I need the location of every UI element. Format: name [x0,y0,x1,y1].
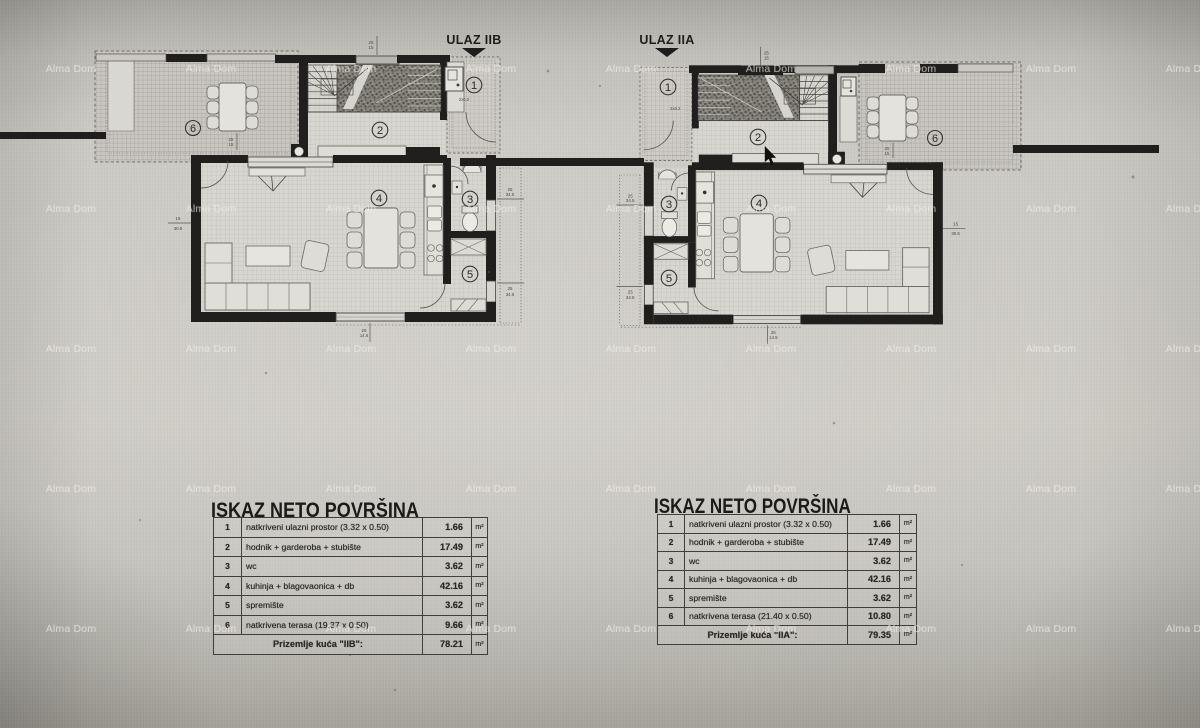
svg-text:15: 15 [176,216,181,221]
svg-text:3: 3 [666,199,672,211]
svg-text:2x0.2: 2x0.2 [459,97,470,102]
svg-text:6: 6 [932,133,938,145]
svg-text:2x0.2: 2x0.2 [670,106,681,111]
svg-text:5: 5 [666,273,672,285]
svg-text:3: 3 [467,194,473,206]
svg-text:30.5: 30.5 [174,226,183,231]
svg-text:15: 15 [764,56,769,61]
svg-text:ULAZ IIA: ULAZ IIA [639,33,694,47]
svg-text:34.5: 34.5 [506,292,515,297]
svg-text:25: 25 [628,289,633,294]
svg-text:14.5: 14.5 [769,335,778,340]
svg-text:5: 5 [467,269,473,281]
svg-text:15: 15 [229,142,234,147]
svg-text:25: 25 [508,286,513,291]
svg-text:34.5: 34.5 [626,295,635,300]
svg-text:34.5: 34.5 [506,192,515,197]
svg-text:15: 15 [953,221,958,226]
svg-text:2: 2 [755,132,761,144]
svg-text:1: 1 [665,82,671,94]
svg-text:15: 15 [369,45,374,50]
svg-text:14.5: 14.5 [360,333,369,338]
svg-text:4: 4 [376,193,382,205]
svg-text:ULAZ IIB: ULAZ IIB [446,33,501,47]
svg-text:15: 15 [885,151,890,156]
svg-text:34.5: 34.5 [626,198,635,203]
svg-text:2: 2 [377,125,383,137]
svg-text:1: 1 [471,80,477,92]
svg-text:4: 4 [756,198,762,210]
svg-text:30.5: 30.5 [951,231,960,236]
svg-text:6: 6 [190,123,196,135]
